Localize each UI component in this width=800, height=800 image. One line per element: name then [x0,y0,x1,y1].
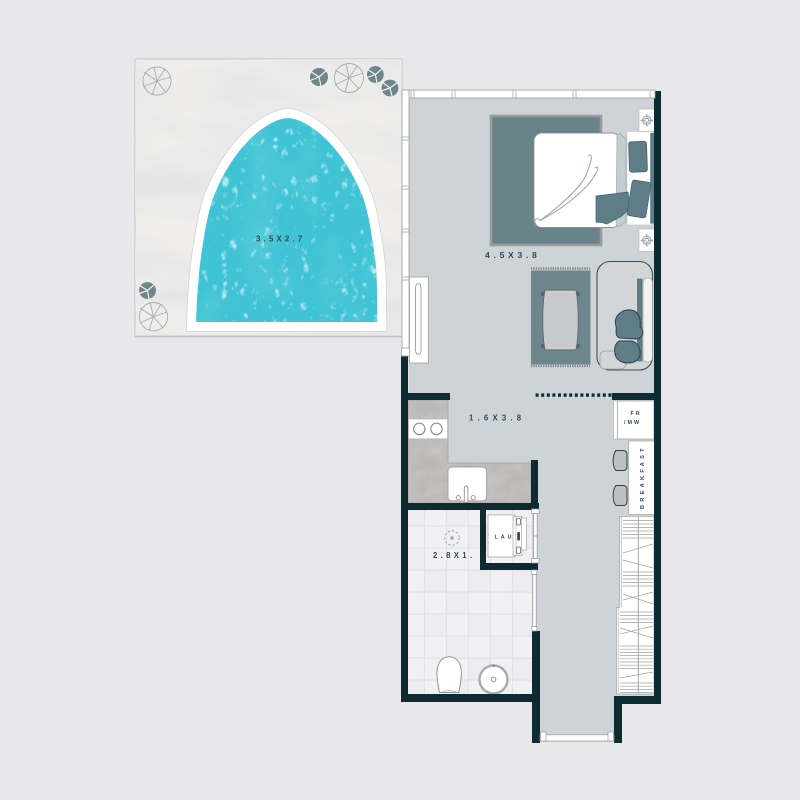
svg-text:LAU: LAU [495,535,515,541]
svg-text:/MW: /MW [624,420,641,426]
svg-text:FR: FR [631,411,642,417]
svg-text:3.5X2.7: 3.5X2.7 [256,235,305,244]
svg-text:BREAKFAST: BREAKFAST [640,445,646,509]
svg-text:2.8X1.: 2.8X1. [433,551,475,560]
svg-text:1.6X3.8: 1.6X3.8 [469,414,525,423]
svg-text:4.5X3.8: 4.5X3.8 [485,250,541,260]
